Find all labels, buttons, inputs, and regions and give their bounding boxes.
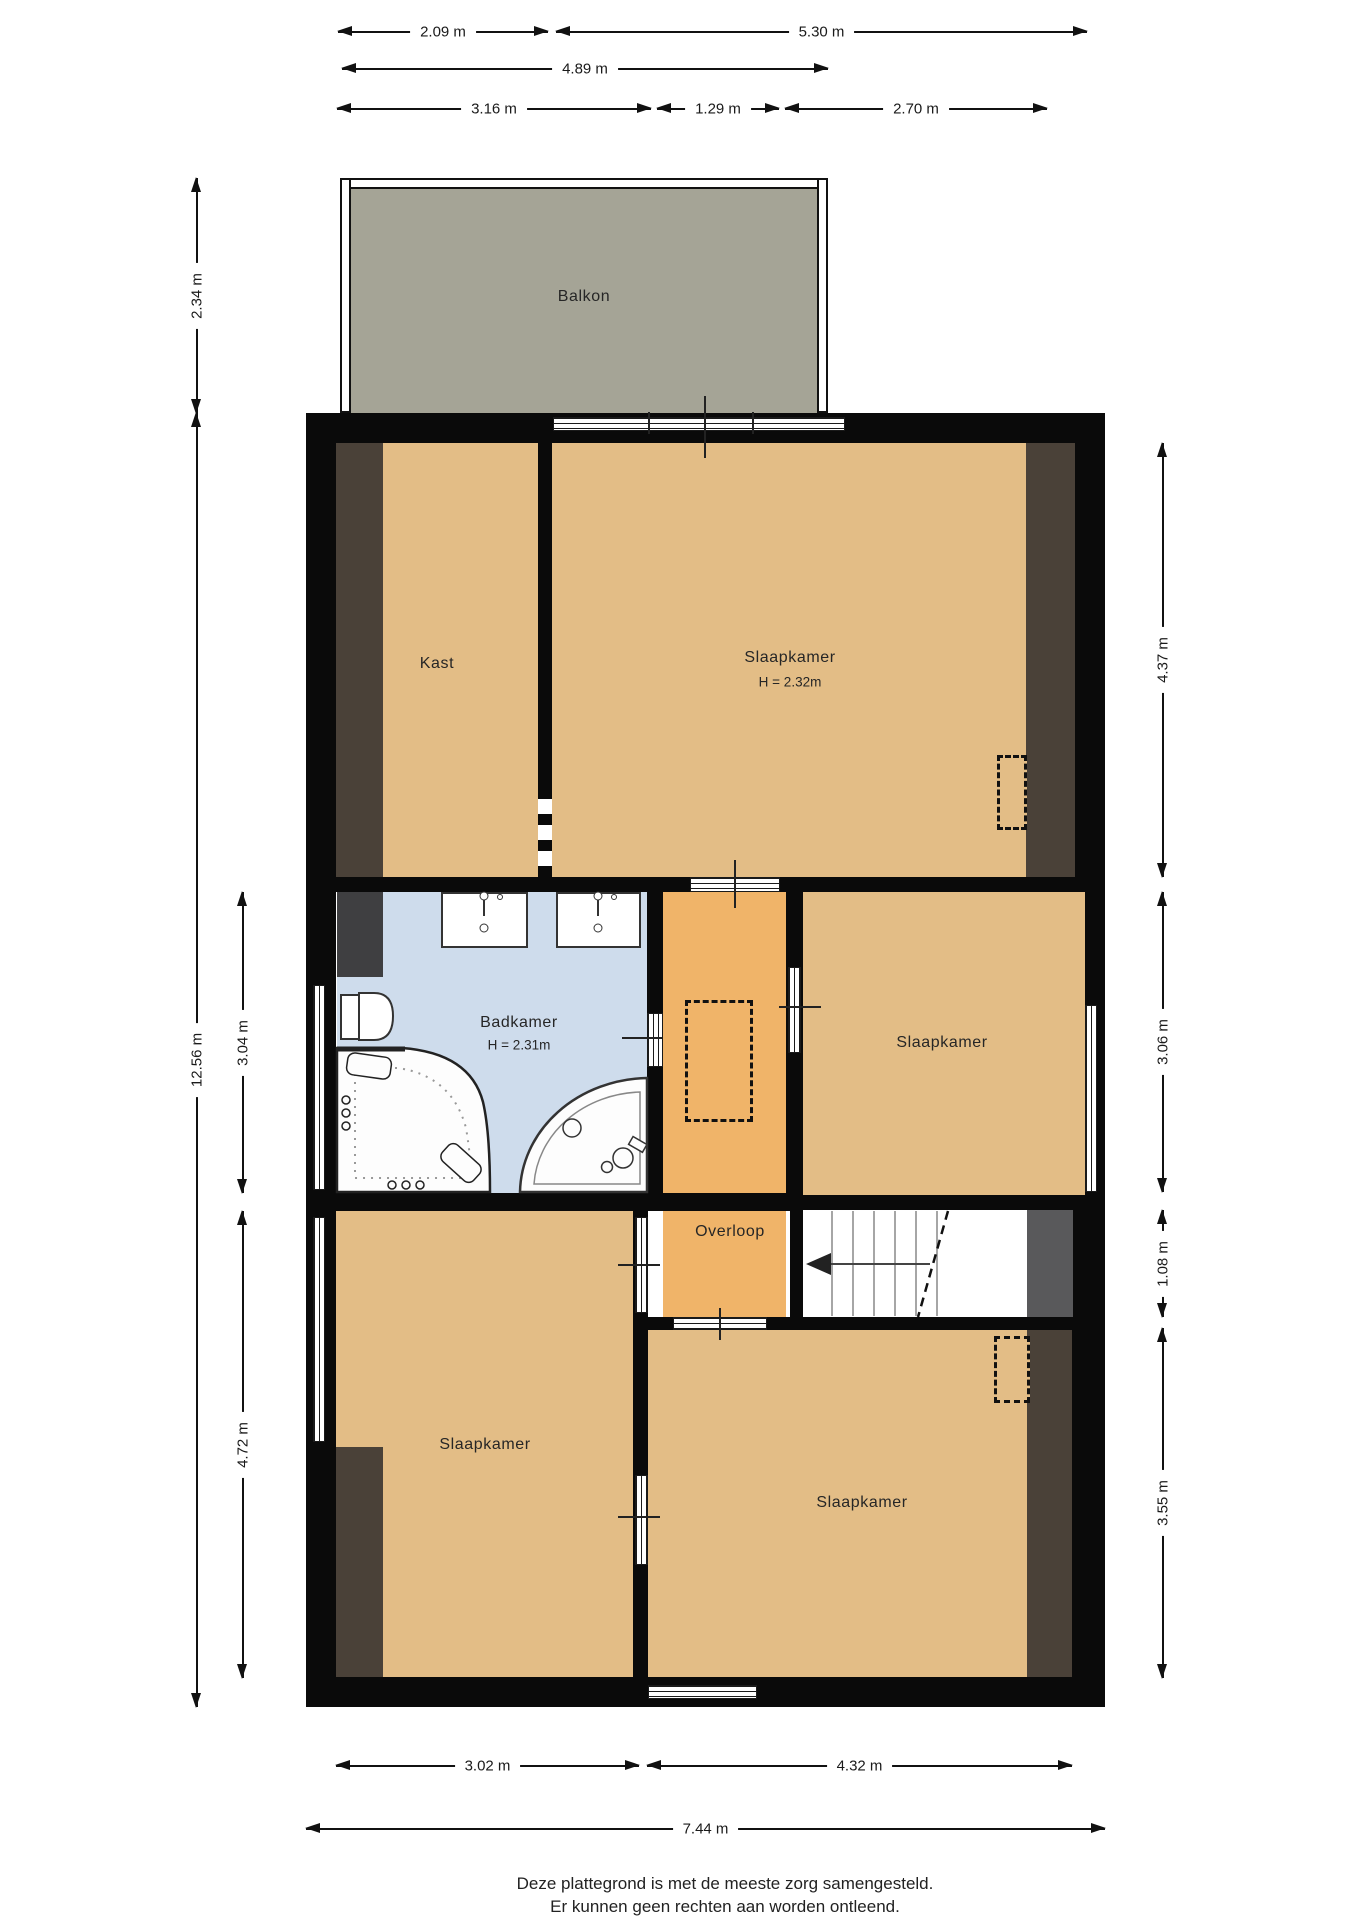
- dim-bottom-7-44: 7.44 m: [306, 1828, 1105, 1830]
- shaft-badkamer: [337, 892, 383, 977]
- dim-top-5-30: 5.30 m: [556, 31, 1087, 33]
- stairwell: [803, 1210, 1027, 1318]
- dormer-marker-slaapkamer-boven: [997, 755, 1027, 830]
- knee-wall-slaapkamer-rechtsonder: [1027, 1330, 1072, 1677]
- door-slaapkamer-midden: [788, 967, 801, 1053]
- room-label-kast: Kast: [420, 655, 454, 673]
- knee-wall-kast: [336, 443, 383, 880]
- disclaimer: Deze plattegrond is met de meeste zorg s…: [110, 1872, 1340, 1918]
- dim-bottom-4-32: 4.32 m: [647, 1765, 1072, 1767]
- room-label-slaapkamer-boven: Slaapkamer: [744, 649, 835, 667]
- room-label-slaapkamer-midden: Slaapkamer: [896, 1034, 987, 1052]
- room-label-slaapkamer-linksonder: Slaapkamer: [439, 1436, 530, 1454]
- dim-right-1-08: 1.08 m: [1162, 1210, 1164, 1317]
- knee-wall-slaapkamer-boven: [1026, 443, 1075, 877]
- room-height-badkamer: H = 2.31m: [488, 1038, 551, 1053]
- room-label-balkon: Balkon: [558, 288, 611, 306]
- dim-right-3-55: 3.55 m: [1162, 1328, 1164, 1678]
- wall-exterior-right-stairs: [1073, 1198, 1105, 1330]
- wall-exterior-right-mid-a: [1085, 892, 1105, 1005]
- door-tick-overloop-bottom: [719, 1308, 721, 1340]
- shaft-stairwell: [1027, 1210, 1075, 1318]
- window-balcony: [553, 417, 845, 431]
- wall-exterior-right-upper: [1075, 413, 1105, 892]
- wall-badkamer-bottom: [306, 1193, 803, 1211]
- dim-right-3-06: 3.06 m: [1162, 892, 1164, 1192]
- room-label-badkamer: Badkamer: [480, 1014, 558, 1032]
- balcony-railing-right: [817, 178, 828, 413]
- dim-left-4-72: 4.72 m: [242, 1211, 244, 1678]
- window-bottom: [648, 1685, 757, 1699]
- dim-top-3-16: 3.16 m: [337, 108, 651, 110]
- door-between-bottom-bedrooms: [635, 1475, 648, 1565]
- wall-exterior-right-lower: [1072, 1330, 1105, 1707]
- floor-plan: Balkon: [0, 0, 1358, 1920]
- balcony-railing-left: [340, 178, 351, 413]
- window-badkamer-left: [313, 985, 325, 1190]
- door-tick-overloop-top: [734, 860, 736, 908]
- dim-top-1-29: 1.29 m: [657, 108, 779, 110]
- dim-left-3-04: 3.04 m: [242, 892, 244, 1193]
- dim-top-2-70: 2.70 m: [785, 108, 1047, 110]
- dim-top-4-89: 4.89 m: [342, 68, 828, 70]
- window-mullion-2: [752, 412, 754, 434]
- room-height-slaapkamer-boven: H = 2.32m: [759, 675, 822, 690]
- door-tick-between-bedrooms: [618, 1516, 660, 1518]
- room-label-overloop: Overloop: [695, 1223, 765, 1241]
- knee-wall-slaapkamer-linksonder: [336, 1447, 383, 1677]
- room-label-slaapkamer-rechtsonder: Slaapkamer: [816, 1494, 907, 1512]
- wall-stairs-left: [790, 1210, 803, 1318]
- wall-exterior-right-mid-b: [1097, 1005, 1105, 1192]
- window-slaapkamer-linksonder-left: [313, 1217, 325, 1442]
- dim-left-2-34: 2.34 m: [196, 178, 198, 413]
- window-mullion-1: [648, 412, 650, 434]
- door-tick-slaapkamer-linksonder: [618, 1264, 660, 1266]
- disclaimer-line-2: Er kunnen geen rechten aan worden ontlee…: [110, 1895, 1340, 1918]
- chimney-shaft-marker: [685, 1000, 753, 1122]
- dim-top-2-09: 2.09 m: [338, 31, 548, 33]
- dormer-marker-slaapkamer-rechtsonder: [994, 1336, 1030, 1403]
- disclaimer-line-1: Deze plattegrond is met de meeste zorg s…: [110, 1872, 1340, 1895]
- dim-right-4-37: 4.37 m: [1162, 443, 1164, 877]
- door-badkamer: [647, 1013, 663, 1067]
- dim-bottom-3-02: 3.02 m: [336, 1765, 639, 1767]
- dim-left-12-56: 12.56 m: [196, 413, 198, 1707]
- door-tick-badkamer: [622, 1037, 662, 1039]
- window-right-slaapkamer-midden: [1085, 1005, 1097, 1192]
- door-tick-slaapkamer-midden: [779, 1006, 821, 1008]
- wall-stairs-top: [803, 1195, 1105, 1210]
- door-tick-balcony: [704, 396, 706, 458]
- balcony-railing-top: [340, 178, 828, 189]
- opening-kast-slaapkamer: [538, 788, 552, 877]
